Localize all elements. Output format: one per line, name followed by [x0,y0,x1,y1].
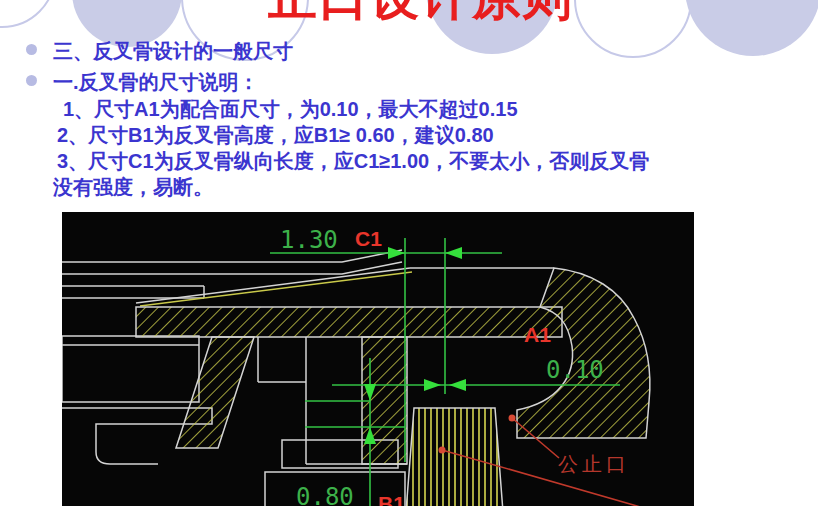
dim-b1-value: 0.80 [296,483,354,506]
decorative-circle [685,0,818,56]
note-line: 1、尺寸A1为配合面尺寸，为0.10，最大不超过0.15 [63,96,518,123]
leader-dot [509,415,516,422]
bullet-icon [26,75,37,86]
note-line: 没有强度，易断。 [53,174,213,201]
dim-a1-value: 0.10 [546,356,604,384]
bullet-label: 一.反叉骨的尺寸说明： [53,69,259,96]
bullet-item: 一.反叉骨的尺寸说明： [26,69,259,96]
yellow-edge-line [140,272,412,306]
bullet-label: 三、反叉骨设计的一般尺寸 [53,38,293,65]
leader-dot [439,447,446,454]
cad-drawing: 1.30 C1 A1 0.10 0.80 B1 公止口 [62,212,694,506]
cad-cross-section-image: 1.30 C1 A1 0.10 0.80 B1 公止口 [62,212,694,506]
note-line: 3、尺寸C1为反叉骨纵向长度，应C1≥1.00，不要太小，否则反叉骨 [57,148,649,175]
dim-c1-value: 1.30 [280,226,338,254]
dim-b1-label: B1 [378,492,405,506]
bullet-icon [26,44,37,55]
dim-c1-label: C1 [355,227,382,250]
decorative-circle [574,0,692,58]
spigot-callout: 公止口 [558,453,630,475]
bullet-item: 三、反叉骨设计的一般尺寸 [26,38,293,65]
page-title: 止口设计原则 [268,0,574,22]
decorative-circle [0,0,56,28]
dim-a1-label: A1 [524,323,551,346]
note-line: 2、尺寸B1为反叉骨高度，应B1≥ 0.60，建议0.80 [57,122,494,149]
